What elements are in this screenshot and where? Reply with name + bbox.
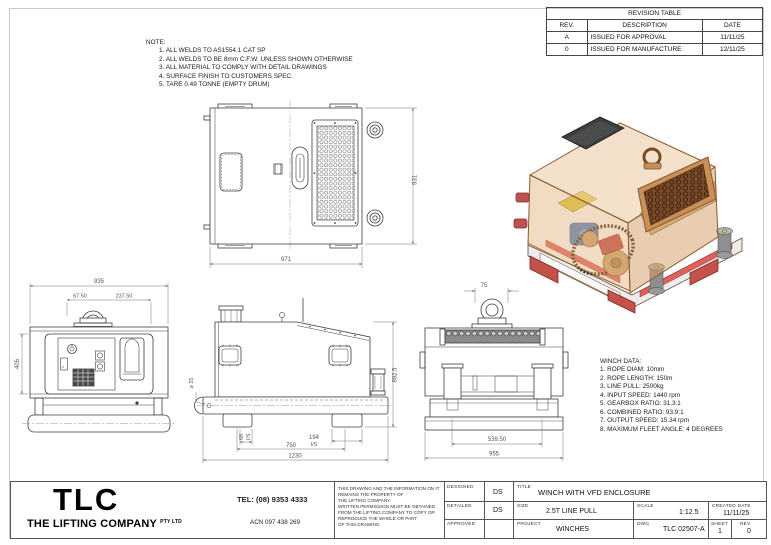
dim-front-eye-right: 237.50: [116, 294, 133, 300]
company-acn: ACN 097 438 269: [250, 519, 300, 526]
revision-date: 12/11/25: [702, 44, 762, 56]
winch-data-item: 7. OUTPUT SPEED: 15.34 rpm: [600, 417, 770, 425]
isometric-view: [500, 95, 770, 315]
rev-value: 0: [747, 528, 751, 535]
revision-table-title: REVISION TABLE: [547, 8, 763, 20]
notes-title: NOTE:: [146, 39, 416, 47]
dim-side-hole: ⌀ 25: [189, 378, 195, 389]
revision-col-rev: REV.: [547, 20, 588, 32]
dim-rear-base: 955: [489, 452, 500, 458]
company-name: THE LIFTING COMPANY PTY LTD: [27, 518, 182, 530]
approved-label: APPROVED: [447, 522, 475, 527]
project-label: PROJECT: [517, 522, 541, 527]
drawing-title: WINCH WITH VFD ENCLOSURE: [538, 488, 651, 497]
created-date-value: 11/11/25: [723, 510, 749, 517]
dim-side-foot: 194: [309, 435, 320, 441]
company-phone: TEL: (08) 9353 4333: [237, 495, 308, 504]
size-label: SIZE: [517, 504, 528, 509]
company-name-text: THE LIFTING COMPANY: [27, 518, 157, 530]
dim-front-height: 405: [15, 358, 21, 369]
size-value: 2.5T LINE PULL: [546, 508, 597, 515]
designed-label: DESIGNED: [447, 485, 474, 490]
note-item: 3. ALL MATERIAL TO COMPLY WITH DETAIL DR…: [159, 64, 416, 72]
sheet-label: SHEET: [711, 522, 728, 527]
dwg-number: TLC 02507-A: [663, 526, 705, 533]
dim-side-inner: 68: [239, 434, 245, 440]
dim-top-height: 931: [413, 174, 419, 185]
table-row: A ISSUED FOR APPROVAL 11/11/25: [547, 32, 763, 44]
title-label: TITLE: [517, 485, 531, 490]
revision-table: REVISION TABLE REV. DESCRIPTION DATE A I…: [546, 7, 763, 56]
dim-side-inner-suffix: I/S: [246, 433, 252, 440]
winch-data-item: 5. GEARBOX RATIO: 31.3:1: [600, 400, 770, 408]
dim-side-overall: 1230: [288, 454, 302, 460]
copyright-disclaimer: THIS DRAWING AND THE INFORMATION ON IT R…: [338, 486, 442, 528]
sheet-value: 1: [718, 528, 722, 535]
dim-rear-legs: 539.50: [488, 437, 507, 443]
winch-data-item: 6. COMBINED RATIO: 93.9:1: [600, 409, 770, 417]
note-item: 5. TARE 0.49 TONNE (EMPTY DRUM): [159, 81, 416, 89]
detailed-value: DS: [493, 507, 503, 514]
winch-data-item: 2. ROPE LENGTH: 150m: [600, 375, 770, 383]
dim-side-spacing: 750: [286, 443, 297, 449]
dim-rear-eye: 75: [481, 283, 488, 289]
winch-data-block: WINCH DATA: 1. ROPE DIAM: 10mm 2. ROPE L…: [600, 358, 770, 434]
dim-front-eye-left: 67.50: [73, 294, 87, 300]
revision-col-date: DATE: [702, 20, 762, 32]
front-view-drawing: 935 67.50 237.50 405: [8, 272, 184, 438]
winch-data-item: 1. ROPE DIAM: 10mm: [600, 366, 770, 374]
winch-data-item: 4. INPUT SPEED: 1440 rpm: [600, 392, 770, 400]
revision-description: ISSUED FOR APPROVAL: [587, 32, 702, 44]
rev-label: REV: [740, 522, 750, 527]
designed-value: DS: [493, 489, 503, 496]
project-value: WINCHES: [556, 526, 589, 533]
revision-date: 11/11/25: [702, 32, 762, 44]
dim-side-height: 892.5: [393, 367, 399, 383]
detailed-label: DETAILED: [447, 504, 472, 509]
winch-data-title: WINCH DATA:: [600, 358, 770, 366]
dwg-label: DWG: [637, 522, 649, 527]
revision-col-description: DESCRIPTION: [587, 20, 702, 32]
winch-data-item: 3. LINE PULL: 2500kg: [600, 383, 770, 391]
drawing-sheet: REVISION TABLE REV. DESCRIPTION DATE A I…: [0, 0, 771, 545]
created-date-label: CREATED DATE: [712, 504, 751, 509]
company-logo: TLC: [53, 482, 119, 518]
side-view-drawing: 892.5 ⌀ 25 68 I/S 750 194 I/S 1230: [185, 293, 415, 470]
title-block: TLC THE LIFTING COMPANY PTY LTD TEL: (08…: [10, 481, 767, 539]
table-row: 0 ISSUED FOR MANUFACTURE 12/11/25: [547, 44, 763, 56]
notes-block: NOTE: 1. ALL WELDS TO AS1554.1 CAT SP 2.…: [146, 39, 416, 90]
dim-top-width: 971: [281, 257, 292, 263]
top-view-drawing: 931 971: [195, 103, 430, 275]
note-item: 4. SURFACE FINISH TO CUSTOMERS SPEC.: [159, 73, 416, 81]
winch-data-item: 8. MAXIMUM FLEET ANGLE: 4 DEGREES: [600, 426, 770, 434]
scale-label: SCALE: [637, 504, 654, 509]
dim-side-foot-suffix: I/S: [311, 442, 318, 448]
revision-rev: A: [547, 32, 588, 44]
revision-rev: 0: [547, 44, 588, 56]
company-suffix: PTY LTD: [160, 519, 182, 525]
note-item: 1. ALL WELDS TO AS1554.1 CAT SP: [159, 47, 416, 55]
revision-description: ISSUED FOR MANUFACTURE: [587, 44, 702, 56]
scale-value: 1:12.5: [679, 509, 698, 516]
dim-front-width: 935: [94, 279, 105, 285]
note-item: 2. ALL WELDS TO BE 8mm C.F.W. UNLESS SHO…: [159, 56, 416, 64]
